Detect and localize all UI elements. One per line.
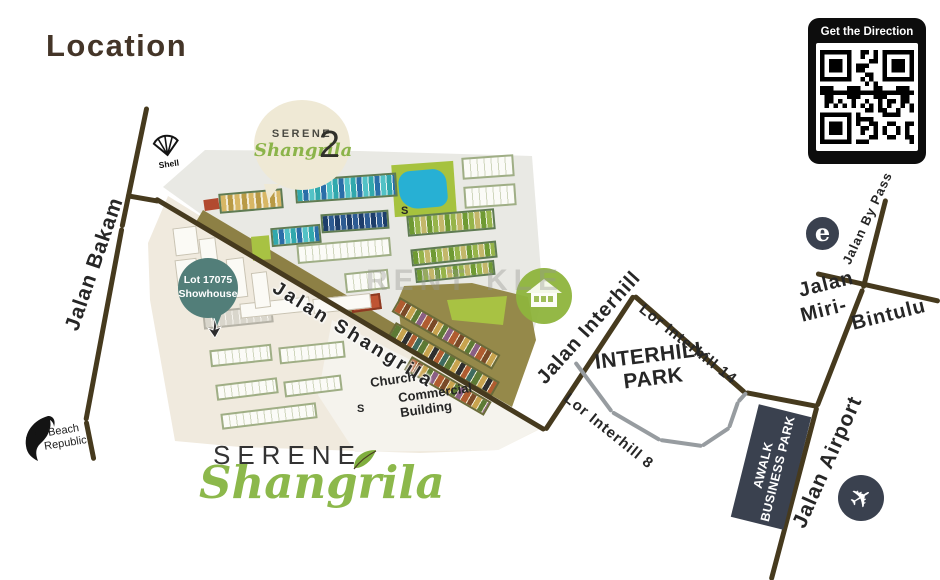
road-minor — [737, 391, 749, 403]
serene2-number: 2 — [319, 124, 340, 167]
s-marker-south: S — [357, 403, 364, 415]
get-direction-qr-card[interactable]: Get the Direction — [808, 18, 926, 164]
road-main — [745, 390, 820, 409]
road-label-jalan-miri-word3: Bintulu — [849, 295, 928, 336]
showhouse-arrow-icon — [207, 318, 223, 343]
showhouse-line1: Lot 17075 — [184, 274, 232, 288]
emart-logo: e — [806, 217, 839, 250]
leaf-icon — [352, 448, 378, 475]
showhouse-bubble: Lot 17075 Showhouse — [178, 258, 238, 318]
shell-logo: Shell — [150, 131, 185, 171]
airplane-icon: ✈ — [843, 479, 879, 517]
emart-letter: e — [815, 218, 830, 247]
qr-code — [816, 43, 918, 151]
road-minor — [660, 438, 703, 448]
house-row — [461, 154, 514, 180]
showhouse-line2: Showhouse — [179, 288, 238, 302]
house-row — [172, 226, 199, 257]
s-marker-pool: S — [401, 205, 408, 217]
swimming-pool — [397, 168, 448, 210]
road-label-jalan-bakam: Jalan Bakam — [61, 194, 129, 334]
main-logo-shangrila: Shangrila — [199, 456, 445, 509]
watermark-text: RENT KLE — [366, 264, 564, 298]
interhill-park-label: INTERHILL PARK — [594, 337, 711, 396]
house-row — [463, 183, 516, 209]
location-map: Jalan Bakam Jalan Shangrila Jalan Interh… — [0, 0, 940, 580]
qr-card-label: Get the Direction — [821, 26, 914, 38]
red-marker — [203, 198, 219, 211]
page-title: Location — [46, 28, 187, 64]
airport-badge: ✈ — [838, 475, 884, 521]
road-minor — [727, 401, 740, 429]
serene-shangrila-2-bubble: SERENE Shangrila 2 — [254, 100, 350, 190]
road-minor — [701, 426, 731, 448]
road-label-jalan-by-pass: Jalan By Pass — [839, 169, 895, 266]
